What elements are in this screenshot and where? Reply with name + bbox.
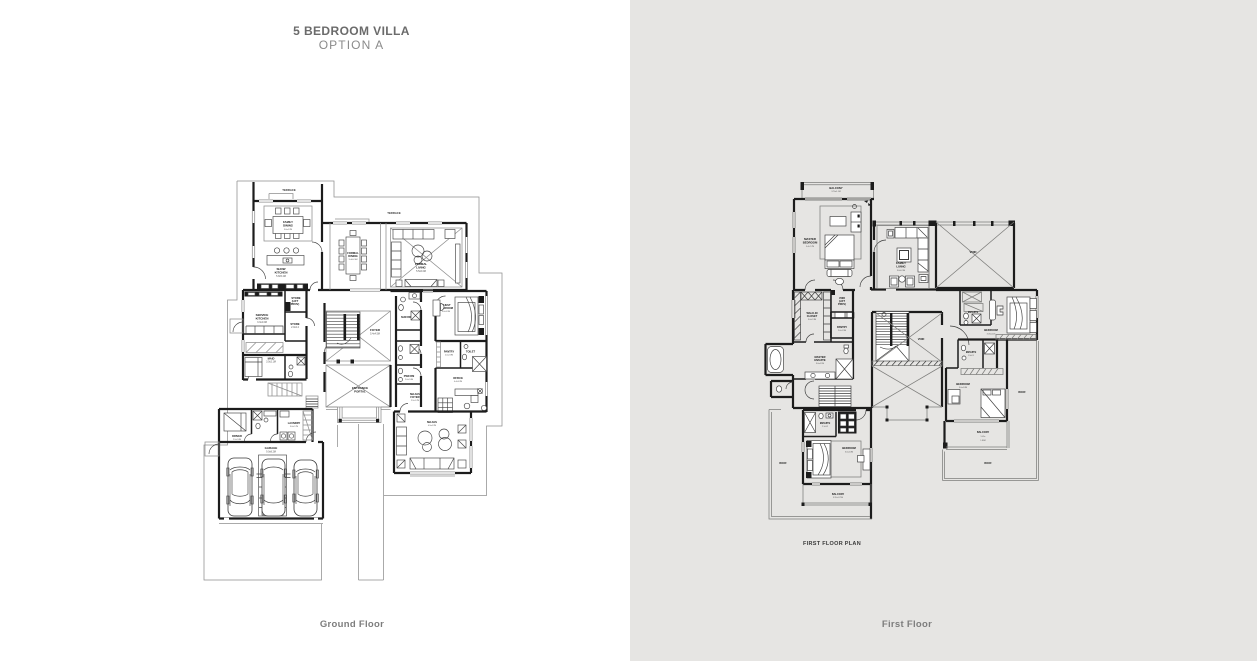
svg-text:3.6x3.9M: 3.6x3.9M xyxy=(442,311,451,313)
svg-text:FOYER: FOYER xyxy=(410,395,419,399)
svg-text:BALCONY: BALCONY xyxy=(832,493,845,496)
svg-text:4.4x3.2M: 4.4x3.2M xyxy=(454,381,463,383)
svg-text:2.9x2.6M: 2.9x2.6M xyxy=(233,439,242,441)
svg-text:3.0x2.7M: 3.0x2.7M xyxy=(290,426,299,428)
svg-text:TOILET: TOILET xyxy=(466,350,476,354)
svg-text:DINING: DINING xyxy=(348,254,357,258)
svg-text:DRIVER: DRIVER xyxy=(232,434,242,438)
svg-text:2.9x1.7M: 2.9x1.7M xyxy=(411,400,420,402)
svg-text:5.4x7.7M: 5.4x7.7M xyxy=(806,246,815,248)
svg-text:PWD RM: PWD RM xyxy=(404,375,414,378)
svg-text:3.0x4.0M: 3.0x4.0M xyxy=(959,387,968,389)
svg-text:3.70x1.1M: 3.70x1.1M xyxy=(831,191,841,193)
svg-text:3.0x4.1M: 3.0x4.1M xyxy=(816,363,825,365)
svg-text:3.4x5.5M: 3.4x5.5M xyxy=(349,259,358,261)
svg-text:3.95x1.75M: 3.95x1.75M xyxy=(833,497,843,499)
svg-text:4.9x4.2M: 4.9x4.2M xyxy=(428,425,437,427)
svg-text:KITCHEN: KITCHEN xyxy=(275,271,288,275)
svg-text:3.0x2.3M: 3.0x2.3M xyxy=(808,319,817,321)
svg-text:ENSUITE: ENSUITE xyxy=(968,311,979,314)
svg-text:OFFICE: OFFICE xyxy=(453,376,463,380)
svg-text:LAUNDRY: LAUNDRY xyxy=(288,421,301,425)
svg-text:3.3x4.0M: 3.3x4.0M xyxy=(257,321,267,324)
svg-text:BEDROOM: BEDROOM xyxy=(842,446,856,450)
svg-text:5.8x5.2M: 5.8x5.2M xyxy=(276,275,286,278)
svg-text:TERRACE: TERRACE xyxy=(282,188,296,192)
svg-text:ENSUITE: ENSUITE xyxy=(820,422,831,425)
svg-text:3.05x4.05: 3.05x4.05 xyxy=(987,334,997,336)
svg-text:5.5x6.0M: 5.5x6.0M xyxy=(416,270,426,273)
svg-text:1.9x2.1: 1.9x2.1 xyxy=(968,355,974,357)
svg-text:ENSUITE: ENSUITE xyxy=(966,351,977,354)
svg-text:2.0x2.0M: 2.0x2.0M xyxy=(405,379,414,381)
svg-text:VOID: VOID xyxy=(918,337,925,341)
svg-text:VOID: VOID xyxy=(969,250,976,254)
svg-text:BALCONY: BALCONY xyxy=(829,186,842,190)
svg-text:3.0x2.1M: 3.0x2.1M xyxy=(266,361,276,364)
svg-text:2.0x2.8M: 2.0x2.8M xyxy=(445,355,454,357)
svg-text:GARAGE: GARAGE xyxy=(265,446,278,450)
svg-text:BALCONY: BALCONY xyxy=(977,431,990,434)
svg-text:PORTAL: PORTAL xyxy=(354,390,366,394)
svg-text:BEDROOM: BEDROOM xyxy=(984,328,998,332)
svg-text:MAJLIS: MAJLIS xyxy=(427,420,437,424)
svg-text:SHW RM: SHW RM xyxy=(401,316,411,319)
svg-text:CLOSET: CLOSET xyxy=(807,314,818,318)
svg-text:TERRACE: TERRACE xyxy=(387,211,401,215)
svg-text:ENSUITE: ENSUITE xyxy=(814,358,826,362)
svg-text:LIVING: LIVING xyxy=(896,265,905,269)
svg-text:5.4x4.5M: 5.4x4.5M xyxy=(370,333,380,336)
svg-text:KITCHEN: KITCHEN xyxy=(256,317,269,321)
svg-text:PANTRY: PANTRY xyxy=(837,326,847,329)
svg-text:BEDROOM: BEDROOM xyxy=(803,241,818,245)
svg-text:5.45x: 5.45x xyxy=(981,436,986,438)
svg-text:PROV): PROV) xyxy=(291,302,300,306)
svg-text:2.0x1.5M: 2.0x1.5M xyxy=(838,330,847,332)
svg-text:1.85M: 1.85M xyxy=(980,440,986,442)
svg-text:BEDROOM: BEDROOM xyxy=(956,382,970,386)
svg-text:PANTRY: PANTRY xyxy=(444,350,455,354)
svg-text:9.0x8.2M: 9.0x8.2M xyxy=(266,451,276,454)
svg-text:DINING: DINING xyxy=(283,224,293,228)
svg-text:2.0x2.2: 2.0x2.2 xyxy=(291,326,300,329)
svg-text:LIVING: LIVING xyxy=(416,266,426,270)
svg-text:FOYER: FOYER xyxy=(370,328,381,332)
svg-text:ROOF: ROOF xyxy=(1018,391,1026,394)
svg-text:PROV): PROV) xyxy=(838,303,846,306)
svg-text:ROOF: ROOF xyxy=(779,462,787,465)
svg-text:3.6x5.5M: 3.6x5.5M xyxy=(897,270,906,272)
svg-text:2.1x3.2: 2.1x3.2 xyxy=(822,426,828,428)
svg-text:3.0x4.0M: 3.0x4.0M xyxy=(845,452,854,454)
svg-text:ROOF: ROOF xyxy=(984,462,992,465)
svg-text:3.6x4.2M: 3.6x4.2M xyxy=(284,229,293,231)
